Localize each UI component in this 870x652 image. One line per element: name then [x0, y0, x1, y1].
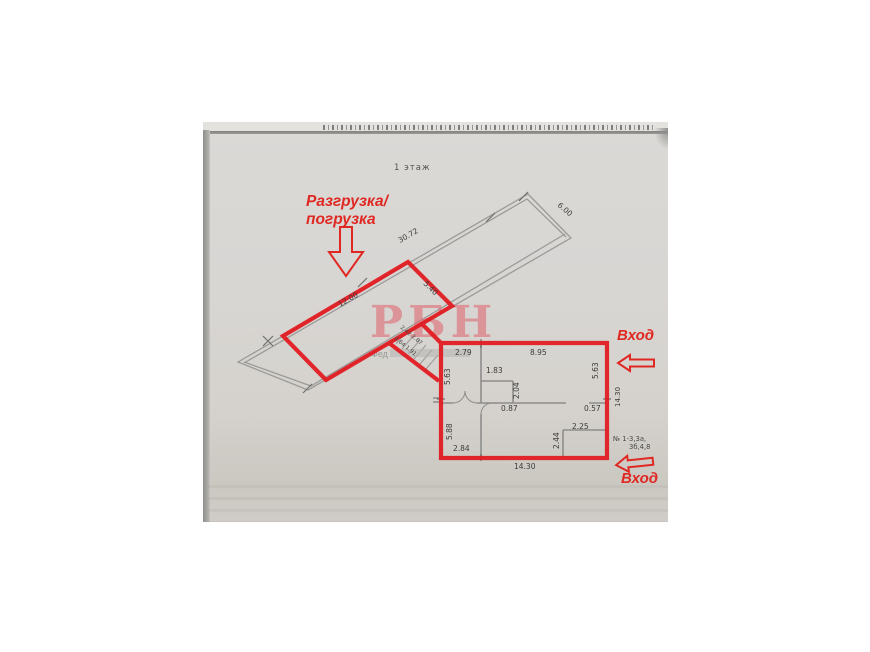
- floor-label: 1 этаж: [394, 163, 431, 173]
- unloading-label-line2: погрузка: [306, 211, 376, 228]
- unloading-label-line1: Разгрузка/: [306, 193, 390, 210]
- dim-hall-length: 30.72: [397, 226, 420, 245]
- dim-closet-width: 2.25: [572, 422, 589, 431]
- dim-block-mid-right: 0.57: [584, 404, 601, 413]
- building-outline: [238, 194, 571, 390]
- dim-room-bottom: 2.84: [453, 444, 470, 453]
- unit-numbers-note: № 1-3,3а, 3б,4,8: [612, 435, 651, 451]
- floorplan-drawing: РБН Фед 1 этаж 6.00 30.72 12.00 5.40 2.4…: [203, 122, 668, 522]
- red-block-outline: [441, 343, 607, 458]
- dim-red-hall-width: 5.40: [422, 279, 440, 297]
- dim-block-mid-left: 0.87: [501, 404, 518, 413]
- left-arrow-icon-top: [618, 355, 654, 371]
- unit-numbers-line1: № 1-3,3а,: [612, 435, 646, 443]
- dim-block-top-left: 2.79: [455, 348, 472, 357]
- dim-block-bottom: 14.30: [514, 462, 536, 471]
- entrance-label-bottom: Вход: [621, 470, 658, 487]
- dim-block-inner-room: 1.83: [486, 366, 503, 375]
- down-arrow-icon: [329, 227, 363, 276]
- dim-block-left-upper: 5.63: [443, 368, 452, 385]
- watermark: РБН Фед: [370, 297, 497, 359]
- hall-outer-wall: [238, 194, 571, 390]
- block-edge-ticks: [437, 339, 611, 461]
- scanned-floorplan-document: РБН Фед 1 этаж 6.00 30.72 12.00 5.40 2.4…: [203, 122, 668, 522]
- dim-block-left-lower: 5.88: [445, 423, 454, 440]
- watermark-logo: РБН: [370, 297, 497, 348]
- dim-red-hall-length: 12.00: [337, 290, 360, 309]
- entrance-label-top: Вход: [617, 327, 654, 344]
- dim-hall-end: 6.00: [556, 201, 575, 219]
- unit-numbers-line2: 3б,4,8: [629, 443, 651, 451]
- dim-block-inner-height: 2.04: [512, 382, 521, 399]
- dim-block-right-side: 14.30: [614, 387, 622, 407]
- dim-closet-height: 2.44: [552, 432, 561, 449]
- block-interior-walls: [433, 344, 606, 457]
- dim-block-right-upper: 5.63: [591, 362, 600, 379]
- dim-block-top-right: 8.95: [530, 348, 547, 357]
